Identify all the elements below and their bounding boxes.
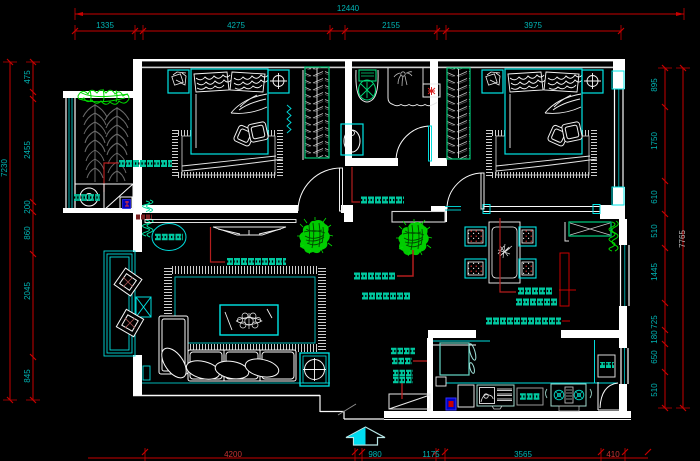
svg-text:4275: 4275 — [227, 21, 245, 30]
svg-text:860: 860 — [23, 226, 32, 240]
svg-text:2155: 2155 — [382, 21, 400, 30]
svg-text:1750: 1750 — [650, 132, 659, 150]
svg-text:3565: 3565 — [514, 450, 532, 459]
svg-text:845: 845 — [23, 369, 32, 383]
svg-text:2455: 2455 — [23, 141, 32, 159]
svg-text:895: 895 — [650, 78, 659, 92]
svg-text:4200: 4200 — [224, 450, 242, 459]
svg-text:180: 180 — [650, 330, 659, 344]
svg-text:980: 980 — [368, 450, 382, 459]
svg-text:650: 650 — [650, 350, 659, 364]
svg-text:510: 510 — [650, 224, 659, 238]
svg-text:725: 725 — [650, 315, 659, 329]
svg-text:1335: 1335 — [96, 21, 114, 30]
svg-text:3975: 3975 — [524, 21, 542, 30]
svg-text:1175: 1175 — [422, 450, 440, 459]
svg-text:610: 610 — [650, 190, 659, 204]
svg-text:7765: 7765 — [678, 230, 687, 248]
svg-text:475: 475 — [23, 70, 32, 84]
svg-text:410: 410 — [606, 450, 620, 459]
svg-text:510: 510 — [650, 383, 659, 397]
svg-text:7230: 7230 — [0, 159, 9, 177]
svg-text:2045: 2045 — [23, 282, 32, 300]
svg-text:12440: 12440 — [337, 4, 360, 13]
svg-text:1445: 1445 — [650, 263, 659, 281]
svg-text:200: 200 — [23, 200, 32, 214]
